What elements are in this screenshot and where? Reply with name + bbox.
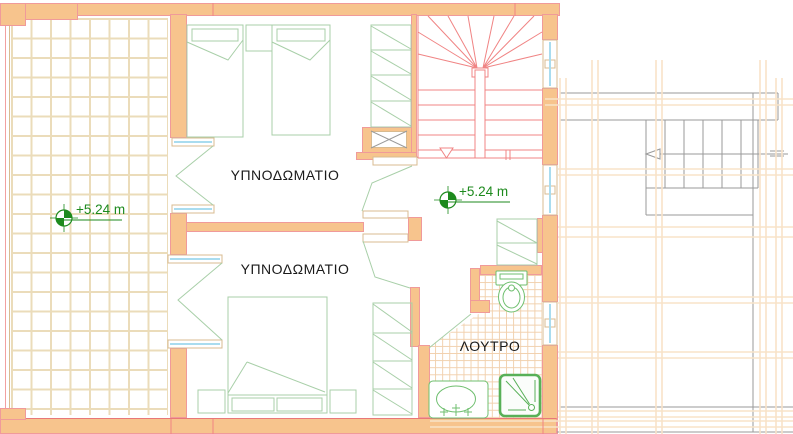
single-bed-2 [272, 25, 330, 135]
single-bed-1 [187, 25, 243, 137]
terrace-railing-line-2 [9, 16, 10, 418]
wardrobe-bedroom-1 [371, 25, 411, 127]
terrace-railing-line [5, 16, 6, 418]
stair-treads-left [418, 90, 475, 150]
adjacent-stair-ticks [770, 151, 784, 156]
double-bed [228, 297, 327, 395]
wall-terrace-divider-b [170, 213, 187, 255]
stair-spine-cap [472, 68, 488, 77]
wall-bathroom-north [480, 265, 542, 275]
linen-closet [497, 219, 537, 265]
wall-bottom-step [0, 408, 26, 420]
stair-boundary [418, 16, 542, 158]
wall-terrace-divider-a [170, 14, 187, 138]
wardrobe-bedroom-2 [373, 303, 412, 415]
pillow-2 [277, 398, 322, 411]
window-frame-1 [543, 40, 557, 88]
adjacent-structure [557, 93, 793, 432]
adjacent-stair-arrow-head [646, 149, 660, 159]
nightstand [246, 25, 272, 51]
door-bedroom-2-swing [363, 241, 410, 288]
wall-right-b [542, 88, 558, 165]
window-frame-2 [543, 165, 557, 215]
wall-right-a [542, 14, 558, 40]
wall-top-left-corner-2 [0, 3, 26, 26]
adjacent-stair-treads [646, 120, 758, 188]
stair-spine [475, 70, 485, 158]
room-label-bathroom: ΛΟΥΤΡΟ [450, 338, 530, 354]
window-frame-3 [543, 302, 557, 345]
wall-terrace-divider-c [170, 348, 187, 418]
nightstand-left [198, 390, 225, 413]
wall-right-c [542, 215, 558, 302]
wall-vestibule-west [410, 287, 420, 347]
door-bedroom-1-swing [362, 166, 412, 211]
wall-stair-stub [356, 152, 417, 160]
wall-between-bedrooms [186, 222, 364, 232]
stair-break-ticks [506, 150, 510, 160]
room-label-bedroom-2: ΥΠΝΟΔΩΜΑΤΙΟ [235, 261, 355, 277]
floor-plan-canvas: ΥΠΝΟΔΩΜΑΤΙΟ ΥΠΝΟΔΩΜΑΤΙΟ ΛΟΥΤΡΟ +5.24 m +… [0, 0, 793, 434]
wall-bathroom-entry-h [470, 300, 490, 313]
elevation-text-terrace: +5.24 m [76, 202, 125, 217]
wall-top [0, 3, 560, 16]
wall-door-jamb-block [408, 217, 422, 241]
french-door-bedroom-2 [178, 263, 222, 340]
elevation-text-landing: +5.24 m [459, 184, 508, 199]
stair-winders-left [418, 16, 477, 68]
nightstand-right [330, 390, 356, 413]
stair-treads-right [485, 90, 542, 150]
wall-bottom [0, 418, 557, 434]
wall-bathroom-west [418, 345, 430, 418]
bedroom-1-furniture [187, 25, 411, 137]
room-label-bedroom-1: ΥΠΝΟΔΩΜΑΤΙΟ [225, 167, 345, 183]
stair-direction-arrow [440, 148, 453, 158]
stair-winders-right [483, 16, 542, 68]
french-door-bedroom-1 [176, 146, 213, 205]
pillow-1 [232, 398, 274, 411]
duct-shaft-box [371, 131, 407, 148]
